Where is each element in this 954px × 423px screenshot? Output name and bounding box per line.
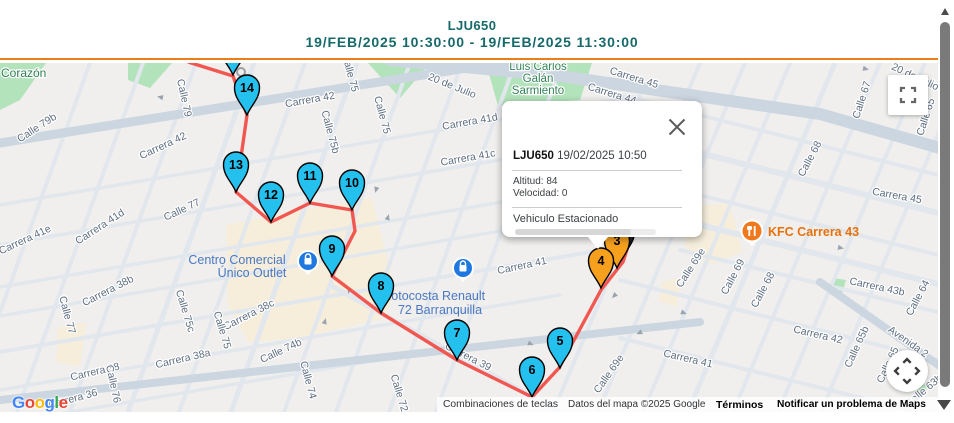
svg-text:KFC Carrera 43: KFC Carrera 43 xyxy=(768,225,859,239)
svg-text:4: 4 xyxy=(598,254,605,268)
svg-text:9: 9 xyxy=(329,242,336,256)
svg-text:Centro Comercial: Centro Comercial xyxy=(188,253,285,267)
svg-text:14: 14 xyxy=(240,81,254,95)
svg-text:Sarmiento: Sarmiento xyxy=(512,85,564,97)
svg-text:5: 5 xyxy=(557,334,564,348)
svg-text:Galán: Galán xyxy=(523,73,554,85)
svg-text:13: 13 xyxy=(229,158,243,172)
svg-text:10: 10 xyxy=(345,176,359,190)
svg-text:6: 6 xyxy=(529,363,536,377)
svg-text:Luis Carlos: Luis Carlos xyxy=(509,63,567,73)
svg-text:Corazón: Corazón xyxy=(1,66,46,80)
svg-text:12: 12 xyxy=(264,188,278,202)
svg-text:8: 8 xyxy=(378,279,385,293)
svg-text:72 Barranquilla: 72 Barranquilla xyxy=(398,303,482,317)
svg-text:11: 11 xyxy=(303,169,316,183)
svg-text:Único Outlet: Único Outlet xyxy=(218,265,287,280)
svg-text:7: 7 xyxy=(454,326,461,340)
svg-text:Motocosta Renault: Motocosta Renault xyxy=(381,289,486,303)
